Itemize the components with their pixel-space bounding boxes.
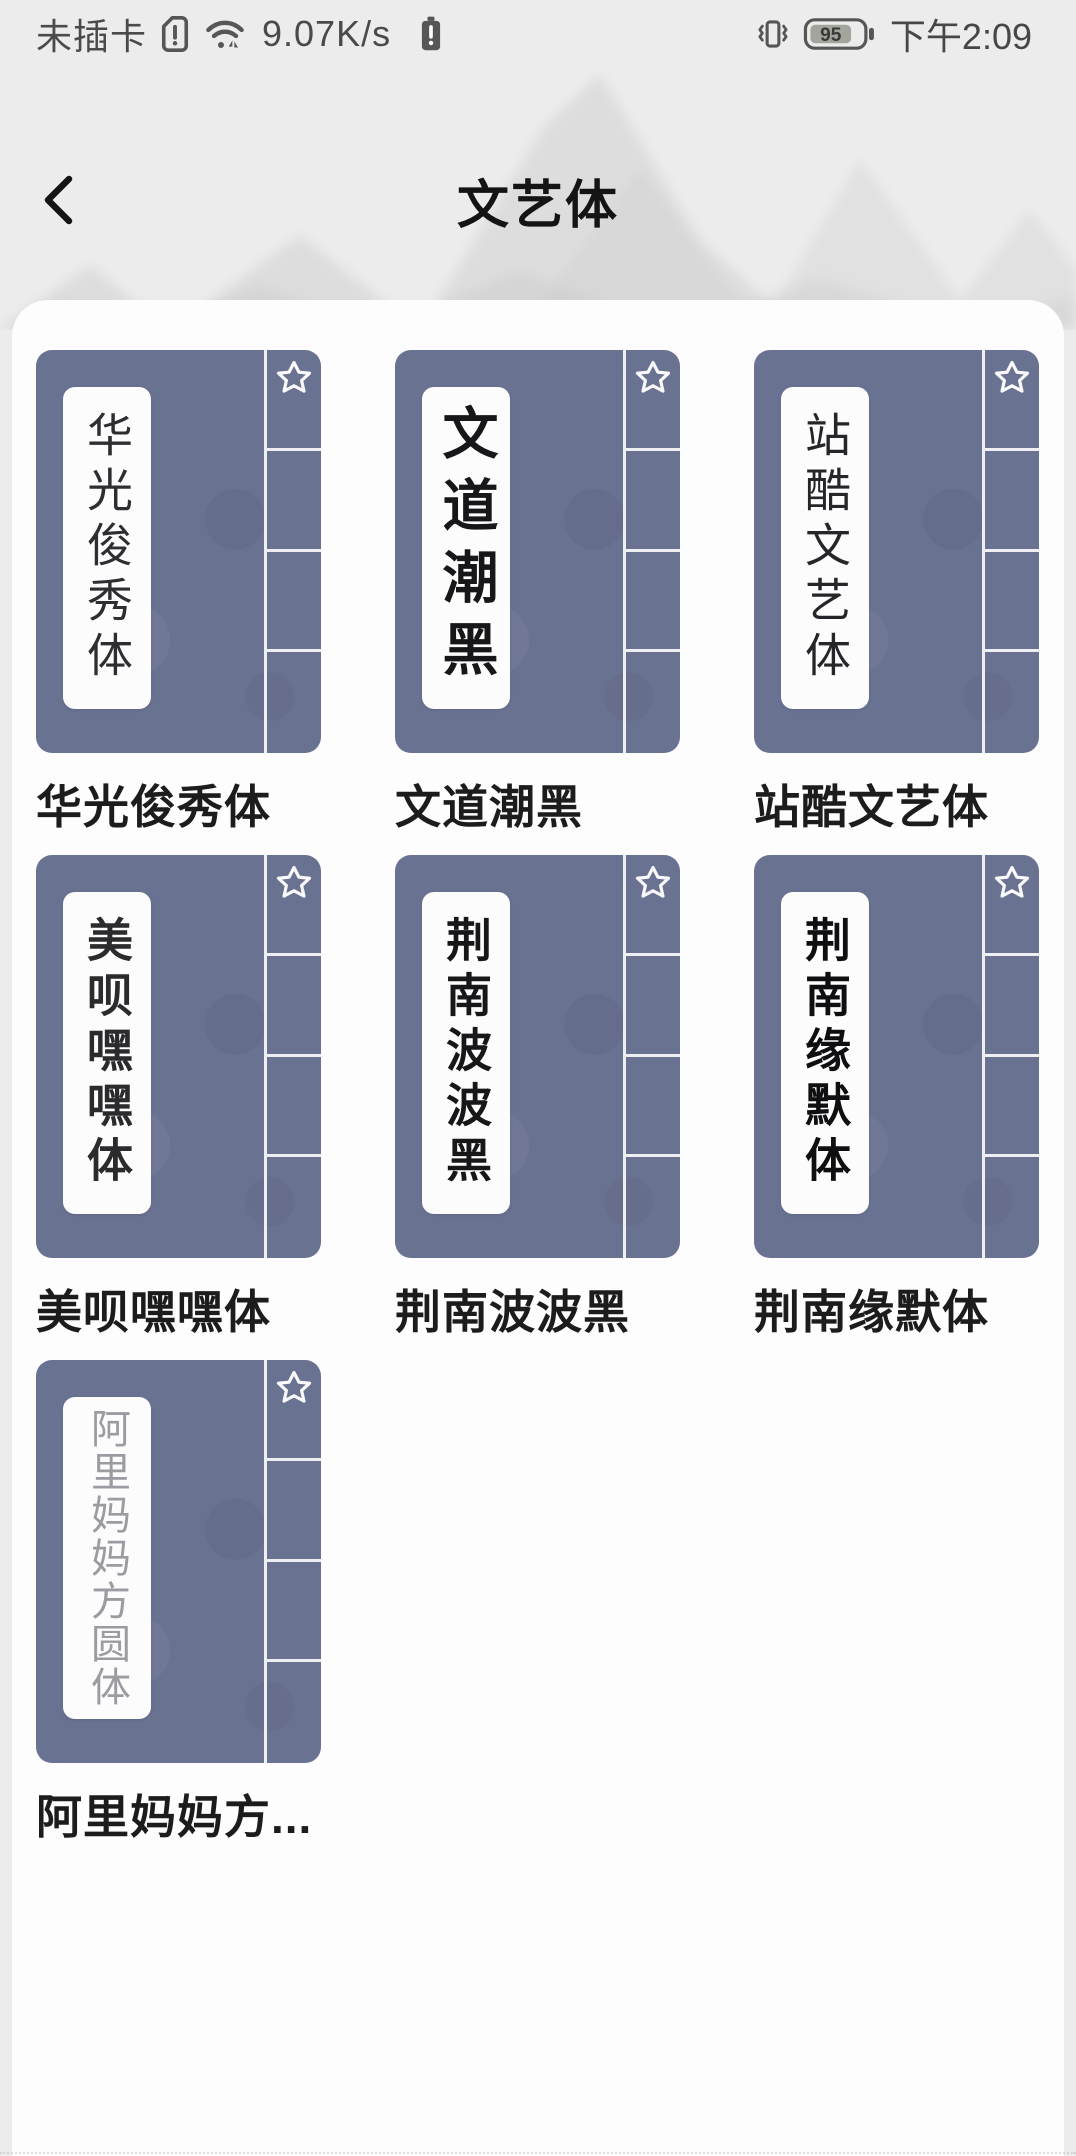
binding-cell [267, 1057, 321, 1158]
binding-cell [267, 652, 321, 753]
binding-cell [985, 956, 1039, 1057]
font-card-cover[interactable]: 华光俊秀体 [36, 350, 321, 753]
font-item[interactable]: 文道潮黑 文道潮黑 [395, 350, 680, 855]
favorite-star-icon[interactable] [993, 359, 1031, 397]
book-binding-column [264, 855, 321, 1258]
book-binding-column [623, 855, 680, 1258]
favorite-star-icon[interactable] [993, 864, 1031, 902]
font-card-cover[interactable]: 美呗嘿嘿体 [36, 855, 321, 1258]
book-binding-column [623, 350, 680, 753]
binding-cell [626, 956, 680, 1057]
font-grid: 华光俊秀体 华光俊秀体 文道潮黑 [12, 300, 1064, 1865]
font-card-cover[interactable]: 文道潮黑 [395, 350, 680, 753]
binding-cell [267, 1562, 321, 1663]
font-spine: 站酷文艺体 [781, 387, 869, 709]
font-spine-text: 站酷文艺体 [802, 411, 848, 686]
binding-cell [267, 956, 321, 1057]
font-name-label: 文道潮黑 [395, 753, 680, 855]
font-card-cover[interactable]: 荆南缘默体 [754, 855, 1039, 1258]
wifi-icon [203, 14, 247, 54]
font-card-cover[interactable]: 站酷文艺体 [754, 350, 1039, 753]
binding-cell [267, 1662, 321, 1763]
binding-cell [985, 451, 1039, 552]
font-spine: 文道潮黑 [422, 387, 510, 709]
binding-cell [267, 1461, 321, 1562]
font-item[interactable]: 荆南缘默体 荆南缘默体 [754, 855, 1039, 1360]
binding-cell [267, 552, 321, 653]
content-panel: 华光俊秀体 华光俊秀体 文道潮黑 [12, 300, 1064, 2156]
font-name-label: 荆南波波黑 [395, 1258, 680, 1360]
font-spine: 阿里妈妈方圆体 [63, 1397, 151, 1719]
font-spine-text: 荆南波波黑 [443, 916, 489, 1191]
binding-cell [626, 652, 680, 753]
book-binding-column [982, 855, 1039, 1258]
favorite-star-icon[interactable] [275, 864, 313, 902]
binding-cell [626, 451, 680, 552]
font-spine: 美呗嘿嘿体 [63, 892, 151, 1214]
binding-cell [985, 552, 1039, 653]
font-item[interactable]: 站酷文艺体 站酷文艺体 [754, 350, 1039, 855]
battery-alert-icon [414, 13, 448, 55]
network-speed: 9.07K/s [262, 13, 391, 55]
font-spine-text: 华光俊秀体 [84, 411, 130, 686]
font-spine: 华光俊秀体 [63, 387, 151, 709]
font-spine-text: 荆南缘默体 [802, 916, 848, 1191]
battery-icon: 95 [803, 14, 877, 54]
font-name-label: 华光俊秀体 [36, 753, 321, 855]
font-item[interactable]: 华光俊秀体 华光俊秀体 [36, 350, 321, 855]
book-binding-column [982, 350, 1039, 753]
font-card-cover[interactable]: 荆南波波黑 [395, 855, 680, 1258]
font-name-label: 站酷文艺体 [754, 753, 1039, 855]
sim-alert-icon [156, 13, 194, 55]
font-item[interactable]: 美呗嘿嘿体 美呗嘿嘿体 [36, 855, 321, 1360]
svg-text:95: 95 [820, 25, 842, 46]
book-binding-column [264, 350, 321, 753]
font-spine: 荆南缘默体 [781, 892, 869, 1214]
favorite-star-icon[interactable] [634, 359, 672, 397]
binding-cell [985, 1157, 1039, 1258]
font-spine-text: 阿里妈妈方圆体 [87, 1408, 127, 1709]
vibrate-icon [752, 14, 794, 54]
favorite-star-icon[interactable] [275, 1369, 313, 1407]
binding-cell [985, 652, 1039, 753]
binding-cell [626, 1157, 680, 1258]
font-spine-text: 文道潮黑 [438, 404, 494, 692]
screen-bottom-edge [0, 2152, 1076, 2154]
status-bar-left: 未插卡 9.07K/s [36, 8, 448, 60]
font-item[interactable]: 阿里妈妈方圆体 阿里妈妈方... [36, 1360, 321, 1865]
status-bar: 未插卡 9.07K/s 95 [0, 0, 1076, 62]
binding-cell [985, 1057, 1039, 1158]
binding-cell [626, 552, 680, 653]
font-spine-text: 美呗嘿嘿体 [84, 916, 130, 1191]
book-binding-column [264, 1360, 321, 1763]
font-name-label: 美呗嘿嘿体 [36, 1258, 321, 1360]
status-bar-right: 95 下午2:09 [752, 8, 1032, 60]
clock-label: 下午2:09 [890, 8, 1032, 60]
font-name-label: 荆南缘默体 [754, 1258, 1039, 1360]
header: 文艺体 [0, 148, 1076, 252]
page-title: 文艺体 [0, 148, 1076, 252]
font-card-cover[interactable]: 阿里妈妈方圆体 [36, 1360, 321, 1763]
font-spine: 荆南波波黑 [422, 892, 510, 1214]
no-sim-label: 未插卡 [36, 8, 147, 60]
binding-cell [267, 1157, 321, 1258]
favorite-star-icon[interactable] [634, 864, 672, 902]
font-item[interactable]: 荆南波波黑 荆南波波黑 [395, 855, 680, 1360]
favorite-star-icon[interactable] [275, 359, 313, 397]
binding-cell [626, 1057, 680, 1158]
binding-cell [267, 451, 321, 552]
font-name-label: 阿里妈妈方... [36, 1763, 321, 1865]
